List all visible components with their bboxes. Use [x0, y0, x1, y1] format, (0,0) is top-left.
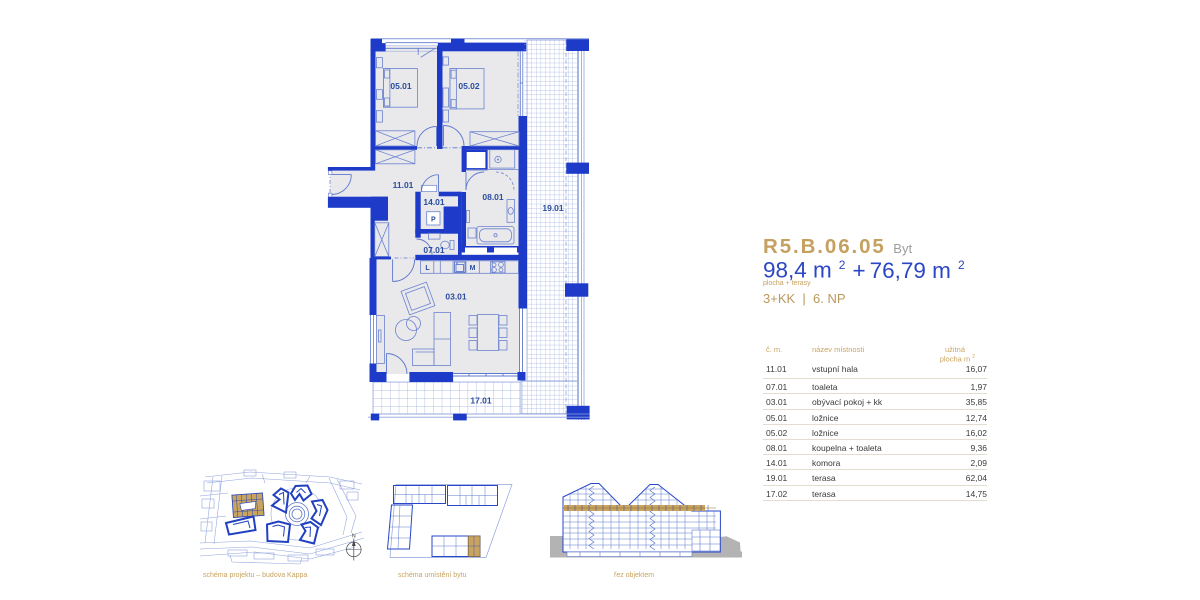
- svg-text:08.01: 08.01: [482, 192, 504, 202]
- svg-text:17.01: 17.01: [470, 396, 492, 406]
- svg-text:11.01: 11.01: [393, 180, 414, 190]
- svg-text:19.01: 19.01: [542, 203, 564, 213]
- svg-text:P: P: [431, 217, 436, 224]
- svg-text:07.01: 07.01: [423, 245, 445, 255]
- svg-text:05.01: 05.01: [390, 81, 412, 91]
- svg-text:03.01: 03.01: [445, 292, 467, 302]
- svg-text:N: N: [352, 534, 356, 540]
- svg-text:L: L: [425, 265, 430, 272]
- svg-text:M: M: [470, 265, 476, 272]
- svg-text:14.01: 14.01: [423, 197, 445, 207]
- svg-text:05.02: 05.02: [458, 81, 480, 91]
